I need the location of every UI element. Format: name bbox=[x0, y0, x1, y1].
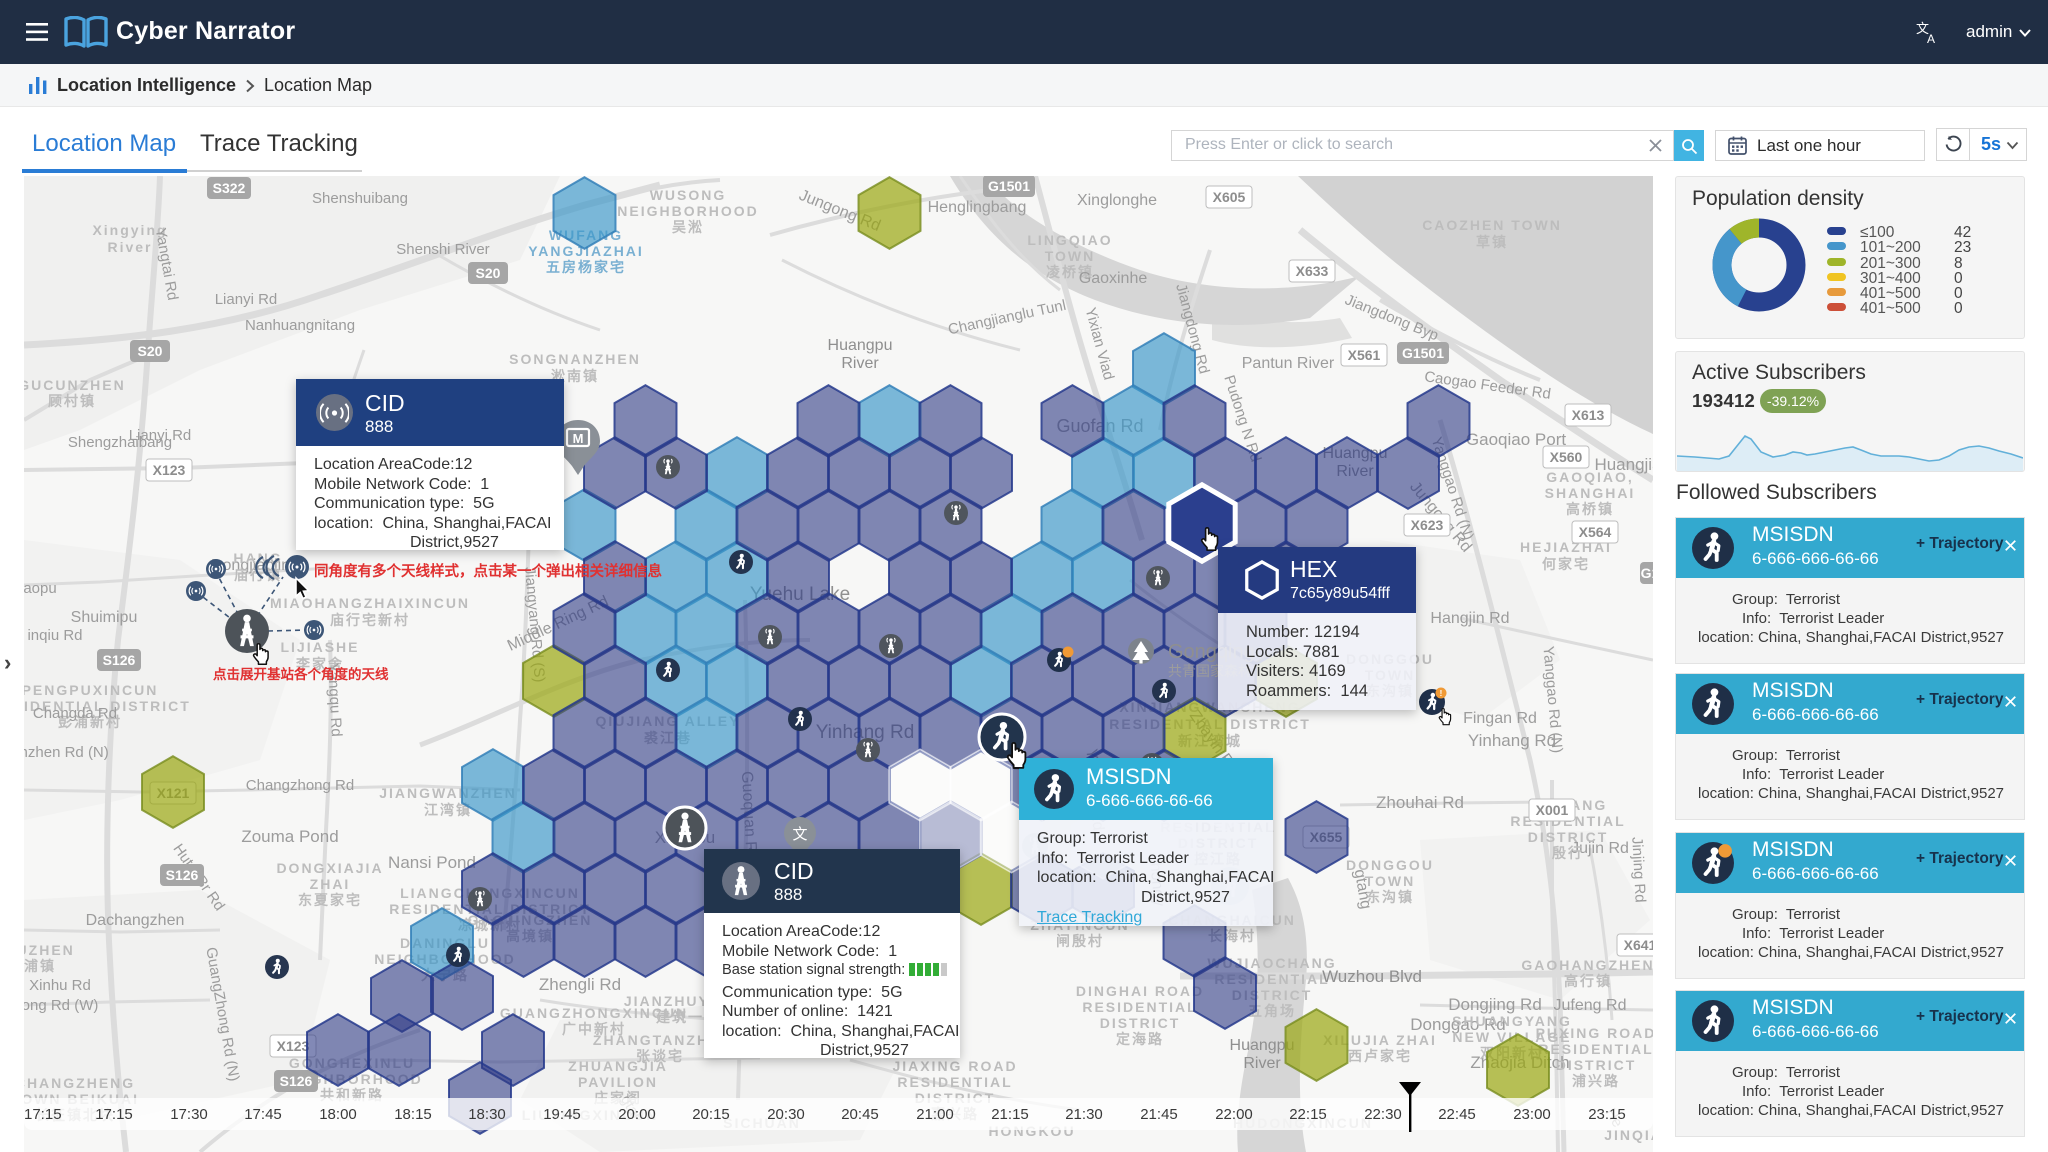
svg-text:DISTRICT: DISTRICT bbox=[1556, 1057, 1637, 1073]
svg-text:SHUANGYANG: SHUANGYANG bbox=[1452, 1013, 1572, 1029]
svg-text:草镇: 草镇 bbox=[1476, 234, 1508, 250]
svg-text:文: 文 bbox=[792, 826, 807, 843]
svg-text:Wuzhou Blvd: Wuzhou Blvd bbox=[1322, 967, 1422, 986]
svg-text:顾村镇: 顾村镇 bbox=[48, 393, 96, 409]
svg-text:G1: G1 bbox=[1641, 565, 1653, 581]
svg-text:殷行: 殷行 bbox=[1552, 845, 1584, 861]
svg-text:LINGQIAO: LINGQIAO bbox=[1027, 232, 1112, 248]
svg-text:X123: X123 bbox=[277, 1038, 310, 1054]
svg-text:GAOHANGZHEN: GAOHANGZHEN bbox=[1521, 957, 1653, 973]
svg-text:Shuimipu: Shuimipu bbox=[71, 609, 138, 626]
svg-text:浦兴路: 浦兴路 bbox=[1572, 1073, 1620, 1089]
svg-text:NEIGHBORHOOD: NEIGHBORHOOD bbox=[617, 203, 758, 219]
svg-text:TOWN: TOWN bbox=[1365, 873, 1416, 889]
svg-text:东夏家宅: 东夏家宅 bbox=[298, 892, 362, 908]
svg-text:Shenshuibang: Shenshuibang bbox=[312, 190, 408, 207]
svg-text:Hangjin Rd: Hangjin Rd bbox=[1430, 610, 1509, 627]
svg-text:X561: X561 bbox=[1348, 347, 1381, 363]
svg-text:Henglingbang: Henglingbang bbox=[928, 199, 1027, 216]
svg-text:WUSONG: WUSONG bbox=[650, 187, 727, 203]
svg-text:Fingan Rd: Fingan Rd bbox=[1463, 710, 1537, 727]
svg-text:HANG: HANG bbox=[233, 550, 282, 566]
svg-text:Dongjing Rd: Dongjing Rd bbox=[1448, 995, 1542, 1014]
svg-text:S126: S126 bbox=[280, 1073, 313, 1089]
svg-text:Gaoxinhe: Gaoxinhe bbox=[1079, 270, 1148, 287]
svg-text:Huangpu: Huangpu bbox=[828, 337, 893, 354]
svg-text:TOWN: TOWN bbox=[1045, 248, 1096, 264]
svg-text:anzhen Rd (N): anzhen Rd (N) bbox=[24, 744, 109, 761]
svg-text:X641: X641 bbox=[1624, 937, 1653, 953]
svg-text:MIAOHANGZHAIXINCUN: MIAOHANGZHAIXINCUN bbox=[270, 595, 470, 611]
svg-text:ZHAI: ZHAI bbox=[310, 876, 351, 892]
svg-text:PAVILION: PAVILION bbox=[578, 1074, 658, 1090]
svg-text:五房杨家宅: 五房杨家宅 bbox=[546, 259, 626, 275]
svg-text:X613: X613 bbox=[1572, 407, 1605, 423]
svg-text:DISTRICT: DISTRICT bbox=[1528, 829, 1609, 845]
svg-text:X564: X564 bbox=[1579, 524, 1612, 540]
svg-text:S20: S20 bbox=[476, 265, 501, 281]
svg-text:CHANGZHENG: CHANGZHENG bbox=[24, 1075, 135, 1091]
svg-text:Yinhang Rd: Yinhang Rd bbox=[1468, 731, 1556, 750]
svg-text:Shenshi River: Shenshi River bbox=[396, 241, 489, 258]
svg-text:DINGHAI ROAD: DINGHAI ROAD bbox=[1076, 983, 1204, 999]
svg-text:River: River bbox=[1243, 1055, 1281, 1072]
svg-text:S20: S20 bbox=[138, 343, 163, 359]
svg-text:Nansi Pond: Nansi Pond bbox=[388, 853, 476, 872]
svg-text:inqiu Rd: inqiu Rd bbox=[27, 627, 82, 644]
svg-text:西卢家宅: 西卢家宅 bbox=[1348, 1048, 1412, 1064]
svg-text:LIJIASHE: LIJIASHE bbox=[280, 639, 359, 655]
svg-text:PENGPUXINCUN: PENGPUXINCUN bbox=[24, 682, 158, 698]
svg-text:RESIDENTIAL: RESIDENTIAL bbox=[897, 1074, 1012, 1090]
svg-text:高桥镇: 高桥镇 bbox=[1566, 501, 1614, 517]
svg-text:CAOZHEN TOWN: CAOZHEN TOWN bbox=[1422, 217, 1562, 233]
svg-text:SHANGHAI: SHANGHAI bbox=[1545, 485, 1636, 501]
svg-text:Lianyi Rd: Lianyi Rd bbox=[129, 427, 192, 444]
svg-text:S126: S126 bbox=[166, 867, 199, 883]
svg-text:Xinhu Rd: Xinhu Rd bbox=[29, 977, 91, 994]
svg-text:GUCUNZHEN: GUCUNZHEN bbox=[24, 377, 126, 393]
svg-text:River: River bbox=[841, 355, 879, 372]
svg-text:Changda Rd: Changda Rd bbox=[33, 705, 117, 722]
svg-text:Pantun River: Pantun River bbox=[1242, 355, 1335, 372]
svg-text:X605: X605 bbox=[1213, 189, 1246, 205]
svg-text:RESIDENTIAL: RESIDENTIAL bbox=[1082, 999, 1197, 1015]
svg-text:吴淞: 吴淞 bbox=[672, 219, 704, 235]
svg-text:点击展开基站各个角度的天线: 点击展开基站各个角度的天线 bbox=[213, 666, 389, 682]
svg-text:A: A bbox=[1927, 32, 1935, 45]
svg-text:庙行宅新村: 庙行宅新村 bbox=[330, 612, 410, 628]
svg-text:X123: X123 bbox=[153, 462, 186, 478]
svg-text:aopu: aopu bbox=[24, 580, 57, 597]
svg-text:S322: S322 bbox=[213, 180, 246, 196]
svg-text:Zhengli Rd: Zhengli Rd bbox=[539, 975, 621, 994]
svg-text:PUZHEN: PUZHEN bbox=[24, 942, 75, 958]
svg-text:SONGNANZHEN: SONGNANZHEN bbox=[509, 351, 641, 367]
svg-text:X560: X560 bbox=[1550, 449, 1583, 465]
svg-text:GAOQIAO,: GAOQIAO, bbox=[1546, 469, 1634, 485]
svg-text:X001: X001 bbox=[1536, 802, 1569, 818]
svg-text:G1501: G1501 bbox=[1402, 345, 1444, 361]
svg-text:Changzhong Rd: Changzhong Rd bbox=[246, 777, 354, 794]
svg-text:X633: X633 bbox=[1296, 263, 1329, 279]
svg-text:同角度有多个天线样式，点击某一个弹出相关详细信息: 同角度有多个天线样式，点击某一个弹出相关详细信息 bbox=[314, 562, 662, 580]
svg-text:M: M bbox=[573, 431, 584, 446]
svg-text:DONGXIAJIA: DONGXIAJIA bbox=[276, 860, 383, 876]
svg-text:张谈宅: 张谈宅 bbox=[636, 1048, 684, 1064]
svg-text:!: ! bbox=[1440, 689, 1443, 698]
svg-text:Jinjing Rd: Jinjing Rd bbox=[1628, 836, 1648, 903]
svg-text:Zhouhai Rd: Zhouhai Rd bbox=[1376, 793, 1464, 812]
svg-text:S126: S126 bbox=[103, 652, 136, 668]
svg-text:闸殷村: 闸殷村 bbox=[1056, 933, 1104, 949]
svg-text:Zouma Pond: Zouma Pond bbox=[241, 827, 338, 846]
svg-text:Jufeng Rd: Jufeng Rd bbox=[1554, 997, 1627, 1014]
svg-text:Lianyi Rd: Lianyi Rd bbox=[215, 291, 278, 308]
svg-text:浦镇: 浦镇 bbox=[24, 958, 56, 974]
svg-text:X623: X623 bbox=[1411, 517, 1444, 533]
svg-text:定海路: 定海路 bbox=[1116, 1031, 1164, 1047]
svg-text:DISTRICT: DISTRICT bbox=[1100, 1015, 1181, 1031]
svg-text:Nanhuangnitang: Nanhuangnitang bbox=[245, 317, 355, 334]
svg-text:ong Rd (W): ong Rd (W) bbox=[24, 997, 98, 1014]
svg-text:何家宅: 何家宅 bbox=[1542, 556, 1590, 572]
svg-text:Xinglonghe: Xinglonghe bbox=[1077, 192, 1157, 209]
svg-text:River: River bbox=[107, 239, 152, 255]
svg-text:Changjianglu Tunl: Changjianglu Tunl bbox=[947, 297, 1068, 339]
svg-text:G1501: G1501 bbox=[988, 178, 1030, 194]
svg-text:Dachangzhen: Dachangzhen bbox=[86, 912, 185, 929]
svg-text:高行镇: 高行镇 bbox=[1564, 973, 1612, 989]
